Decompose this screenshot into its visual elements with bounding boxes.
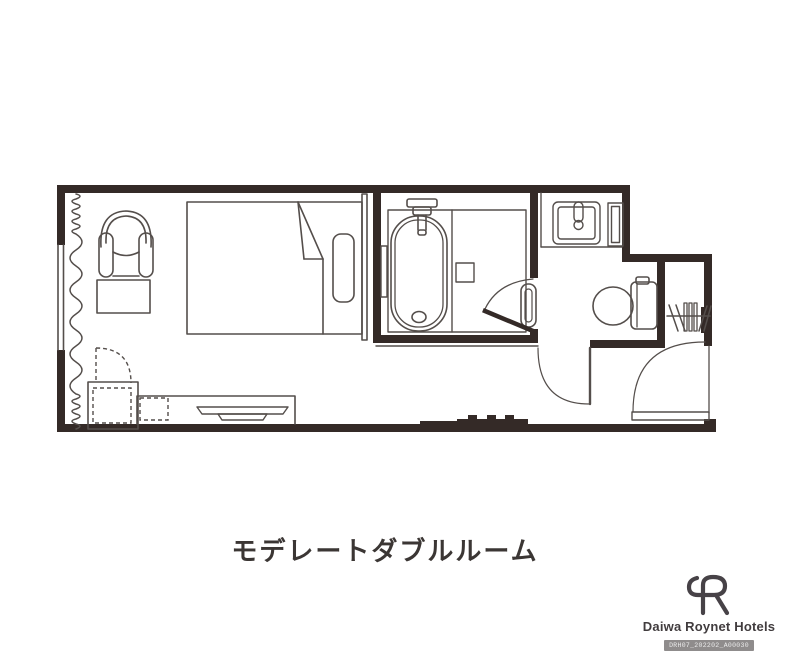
door-handle (521, 284, 536, 327)
wall-bathroom-right-upper (530, 193, 538, 278)
wall-left-lower (57, 350, 65, 432)
tub-drain (412, 312, 426, 323)
threshold-step-a (420, 421, 457, 425)
daiwa-roynet-logo-icon (683, 573, 735, 617)
entrance-door (632, 342, 709, 420)
luggage-rack-dashed (93, 388, 131, 423)
toilet-door (538, 348, 590, 404)
wall-bathroom-bottom (373, 335, 538, 343)
bed (187, 194, 367, 340)
washbasin-icon (541, 193, 622, 247)
wall-top (57, 185, 630, 193)
page: モデレートダブルルーム Daiwa Roynet Hotels DRH07_20… (0, 0, 790, 658)
curtain-icon (70, 194, 82, 429)
side-table (97, 280, 150, 313)
wall-left-upper (57, 185, 65, 245)
threshold-notch-3 (505, 415, 514, 421)
wall-bottom (57, 424, 716, 432)
basin-faucet (574, 202, 583, 222)
bathroom-unit (381, 210, 526, 332)
armchair-icon (99, 211, 153, 277)
wall-toilet-bottom (590, 340, 665, 348)
threshold-notch-1 (468, 415, 477, 421)
toilet-icon (593, 277, 657, 329)
bathtub-icon (391, 199, 447, 331)
entrance-door-leaf (632, 412, 709, 420)
walls (57, 185, 716, 432)
wall-right-upper (704, 262, 712, 346)
towel-bar (381, 246, 387, 297)
bath-shelf (456, 263, 474, 282)
wall-right-corner (704, 419, 716, 432)
tub-faucet (407, 199, 437, 207)
brand-name: Daiwa Roynet Hotels (634, 619, 784, 634)
threshold-notch-2 (487, 415, 496, 421)
wall-step-horizontal (622, 254, 712, 262)
tv-icon (197, 407, 288, 420)
brand-code-badge: DRH07_202202_A00030 (664, 640, 754, 651)
pillow (333, 234, 354, 302)
stool-dashed (140, 398, 168, 420)
brand-block: Daiwa Roynet Hotels DRH07_202202_A00030 (634, 573, 784, 652)
closet-door-dashed (96, 348, 131, 383)
window (58, 245, 64, 350)
wall-bathroom-left (373, 193, 381, 343)
mirror-cabinet (608, 203, 623, 246)
wall-closet-partition (657, 262, 665, 348)
headboard (362, 194, 367, 340)
room-title: モデレートダブルルーム (55, 531, 715, 568)
